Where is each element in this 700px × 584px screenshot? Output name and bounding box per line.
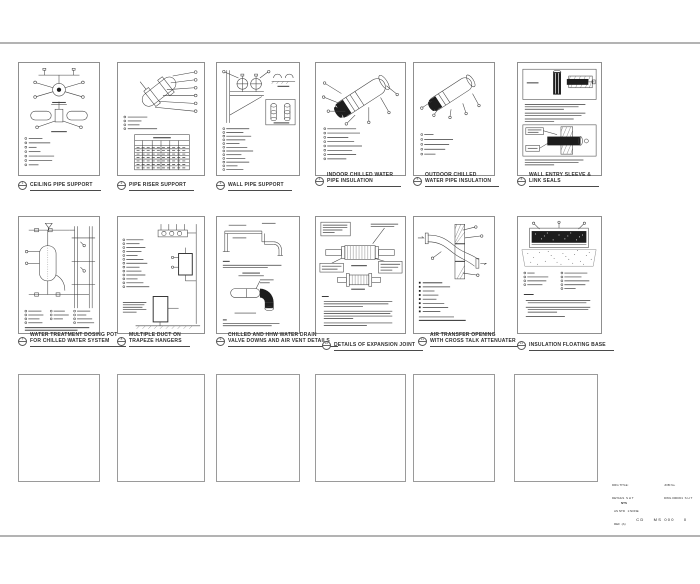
detail-title-outdoor-insulation: 5 OUTDOOR CHILLED WATER PIPE INSULATION xyxy=(413,172,499,187)
drawing-sheet: 1 CEILING PIPE SUPPORT 2 PIPE RISER SUPP… xyxy=(0,0,700,584)
detail-panel-pipe-riser-support xyxy=(117,62,205,176)
detail-callout: 10 xyxy=(322,341,331,350)
detail-panel-wall-pipe-support xyxy=(216,62,300,176)
title-line: FOR CHILLED WATER SYSTEM xyxy=(30,338,109,344)
empty-detail-frame-2 xyxy=(117,374,205,482)
title-line: LINK SEALS xyxy=(529,178,561,184)
detail-callout: 3 xyxy=(216,181,225,190)
detail-panel-dosing-pot xyxy=(18,216,100,334)
detail-title-text: WALL PIPE SUPPORT xyxy=(228,183,292,191)
empty-detail-frame-3 xyxy=(216,374,300,482)
detail-title-text: OUTDOOR CHILLED WATER PIPE INSULATION xyxy=(425,173,499,187)
detail-callout: 4 xyxy=(315,177,324,186)
detail-title-trapeze-hangers: 8 MULTIPLE DUCT ON TRAPEZE HANGERS xyxy=(117,332,190,347)
detail-callout: 2 xyxy=(117,181,126,190)
detail-title-text: INDOOR CHILLED WATER PIPE INSULATION xyxy=(327,173,401,187)
detail-title-text: INSULATION FLOATING BASE xyxy=(529,343,614,351)
ceiling-pipe-support-drawing xyxy=(19,63,99,175)
title-line: WATER PIPE INSULATION xyxy=(425,178,491,184)
detail-panel-ceiling-pipe-support xyxy=(18,62,100,176)
detail-title-text: WATER TREATMENT DOSING POT FOR CHILLED W… xyxy=(30,333,126,347)
title-line: PIPE INSULATION xyxy=(327,178,373,184)
detail-title-wall-entry-sleeve: 6 WALL ENTRY SLEEVE & LINK SEALS xyxy=(517,172,599,187)
detail-callout: 8 xyxy=(117,337,126,346)
detail-title-text: CEILING PIPE SUPPORT xyxy=(30,183,101,191)
trapeze-hangers-drawing xyxy=(118,217,204,333)
detail-panel-expansion-joint xyxy=(315,216,406,334)
detail-callout: 12 xyxy=(517,341,526,350)
title-line: WALL PIPE SUPPORT xyxy=(228,182,284,188)
title-line: PIPE RISER SUPPORT xyxy=(129,182,186,188)
dosing-pot-drawing xyxy=(19,217,99,333)
expansion-joint-drawing xyxy=(316,217,405,333)
title-block-line: DWG 0000/01 S H T xyxy=(664,496,692,500)
title-line: INSULATION FLOATING BASE xyxy=(529,342,606,348)
detail-title-ceiling-pipe-support: 1 CEILING PIPE SUPPORT xyxy=(18,176,101,191)
detail-title-pipe-riser-support: 2 PIPE RISER SUPPORT xyxy=(117,176,194,191)
pipe-riser-support-drawing xyxy=(118,63,204,175)
floating-base-drawing xyxy=(518,217,601,333)
detail-title-drain-air-vent: 9 CHILLED AND HHW WATER DRAIN VALVE DOWN… xyxy=(216,332,338,347)
drain-air-vent-drawing xyxy=(217,217,299,333)
detail-title-floating-base: 12 INSULATION FLOATING BASE xyxy=(517,336,614,351)
wall-entry-sleeve-drawing xyxy=(518,63,601,175)
wall-pipe-support-drawing xyxy=(217,63,299,175)
detail-panel-outdoor-insulation xyxy=(413,62,495,176)
detail-panel-wall-entry-sleeve xyxy=(517,62,602,176)
detail-title-indoor-insulation: 4 INDOOR CHILLED WATER PIPE INSULATION xyxy=(315,172,401,187)
air-transfer-drawing xyxy=(414,217,494,333)
sheet-top-border xyxy=(0,42,700,44)
detail-title-expansion-joint: 10 DETAILS OF EXPANSION JOINT xyxy=(322,336,423,351)
detail-title-air-transfer: 11 AIR TRANSFER OPENING WITH CROSS TALK … xyxy=(418,332,524,347)
detail-title-text: AIR TRANSFER OPENING WITH CROSS TALK ATT… xyxy=(430,333,524,347)
title-line: DETAILS OF EXPANSION JOINT xyxy=(334,342,415,348)
empty-detail-frame-5 xyxy=(413,374,495,482)
indoor-insulation-drawing xyxy=(316,63,405,175)
title-block-right-labels: JOB No. DWG 0000/01 S H T xyxy=(664,474,692,509)
detail-callout: 1 xyxy=(18,181,27,190)
detail-panel-trapeze-hangers xyxy=(117,216,205,334)
title-line: WITH CROSS TALK ATTENUATER xyxy=(430,338,516,344)
detail-callout: 7 xyxy=(18,337,27,346)
detail-callout: 11 xyxy=(418,337,427,346)
empty-detail-frame-6 xyxy=(514,374,598,482)
title-line: CEILING PIPE SUPPORT xyxy=(30,182,93,188)
title-line: VALVE DOWNS AND AIR VENT DETAILS xyxy=(228,338,330,344)
detail-callout: 6 xyxy=(517,177,526,186)
detail-panel-drain-air-vent xyxy=(216,216,300,334)
detail-panel-floating-base xyxy=(517,216,602,334)
outdoor-insulation-drawing xyxy=(414,63,494,175)
sheet-bottom-border xyxy=(0,535,700,537)
empty-detail-frame-4 xyxy=(315,374,406,482)
drawing-number-text: CD MS 000 0 xyxy=(636,517,687,522)
detail-panel-air-transfer xyxy=(413,216,495,334)
empty-detail-frame-1 xyxy=(18,374,100,482)
detail-callout: 5 xyxy=(413,177,422,186)
detail-title-text: MULTIPLE DUCT ON TRAPEZE HANGERS xyxy=(129,333,190,347)
detail-title-text: PIPE RISER SUPPORT xyxy=(129,183,194,191)
drawing-number: CD MS 000 0 xyxy=(627,512,687,527)
detail-panel-indoor-insulation xyxy=(315,62,406,176)
detail-callout: 9 xyxy=(216,337,225,346)
title-block-line: DRG TITLE: xyxy=(612,483,634,487)
detail-title-dosing-pot: 7 WATER TREATMENT DOSING POT FOR CHILLED… xyxy=(18,332,126,347)
title-block-line: JOB No. xyxy=(664,483,692,487)
detail-title-text: WALL ENTRY SLEEVE & LINK SEALS xyxy=(529,173,599,187)
title-line: TRAPEZE HANGERS xyxy=(129,338,182,344)
detail-title-text: DETAILS OF EXPANSION JOINT xyxy=(334,343,423,351)
detail-title-wall-pipe-support: 3 WALL PIPE SUPPORT xyxy=(216,176,292,191)
